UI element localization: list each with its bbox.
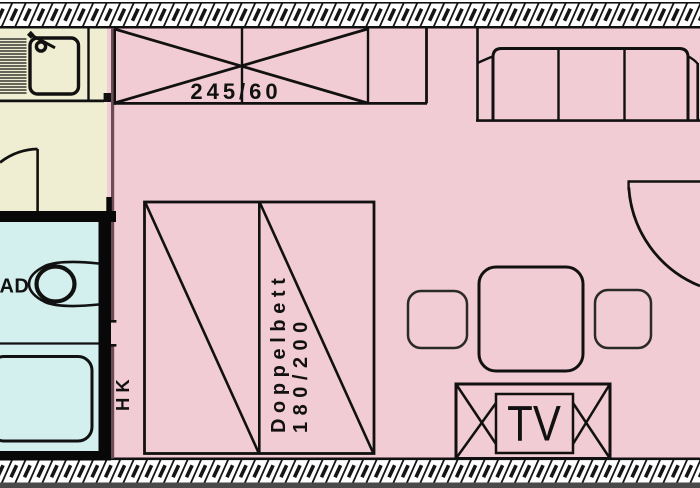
svg-text:BAD: BAD: [0, 276, 29, 298]
svg-text:HK: HK: [112, 374, 133, 411]
svg-text:245/60: 245/60: [190, 79, 281, 104]
svg-text:TV: TV: [507, 395, 561, 451]
svg-text:Doppelbett: Doppelbett: [268, 273, 290, 433]
svg-text:180/200: 180/200: [290, 315, 312, 433]
